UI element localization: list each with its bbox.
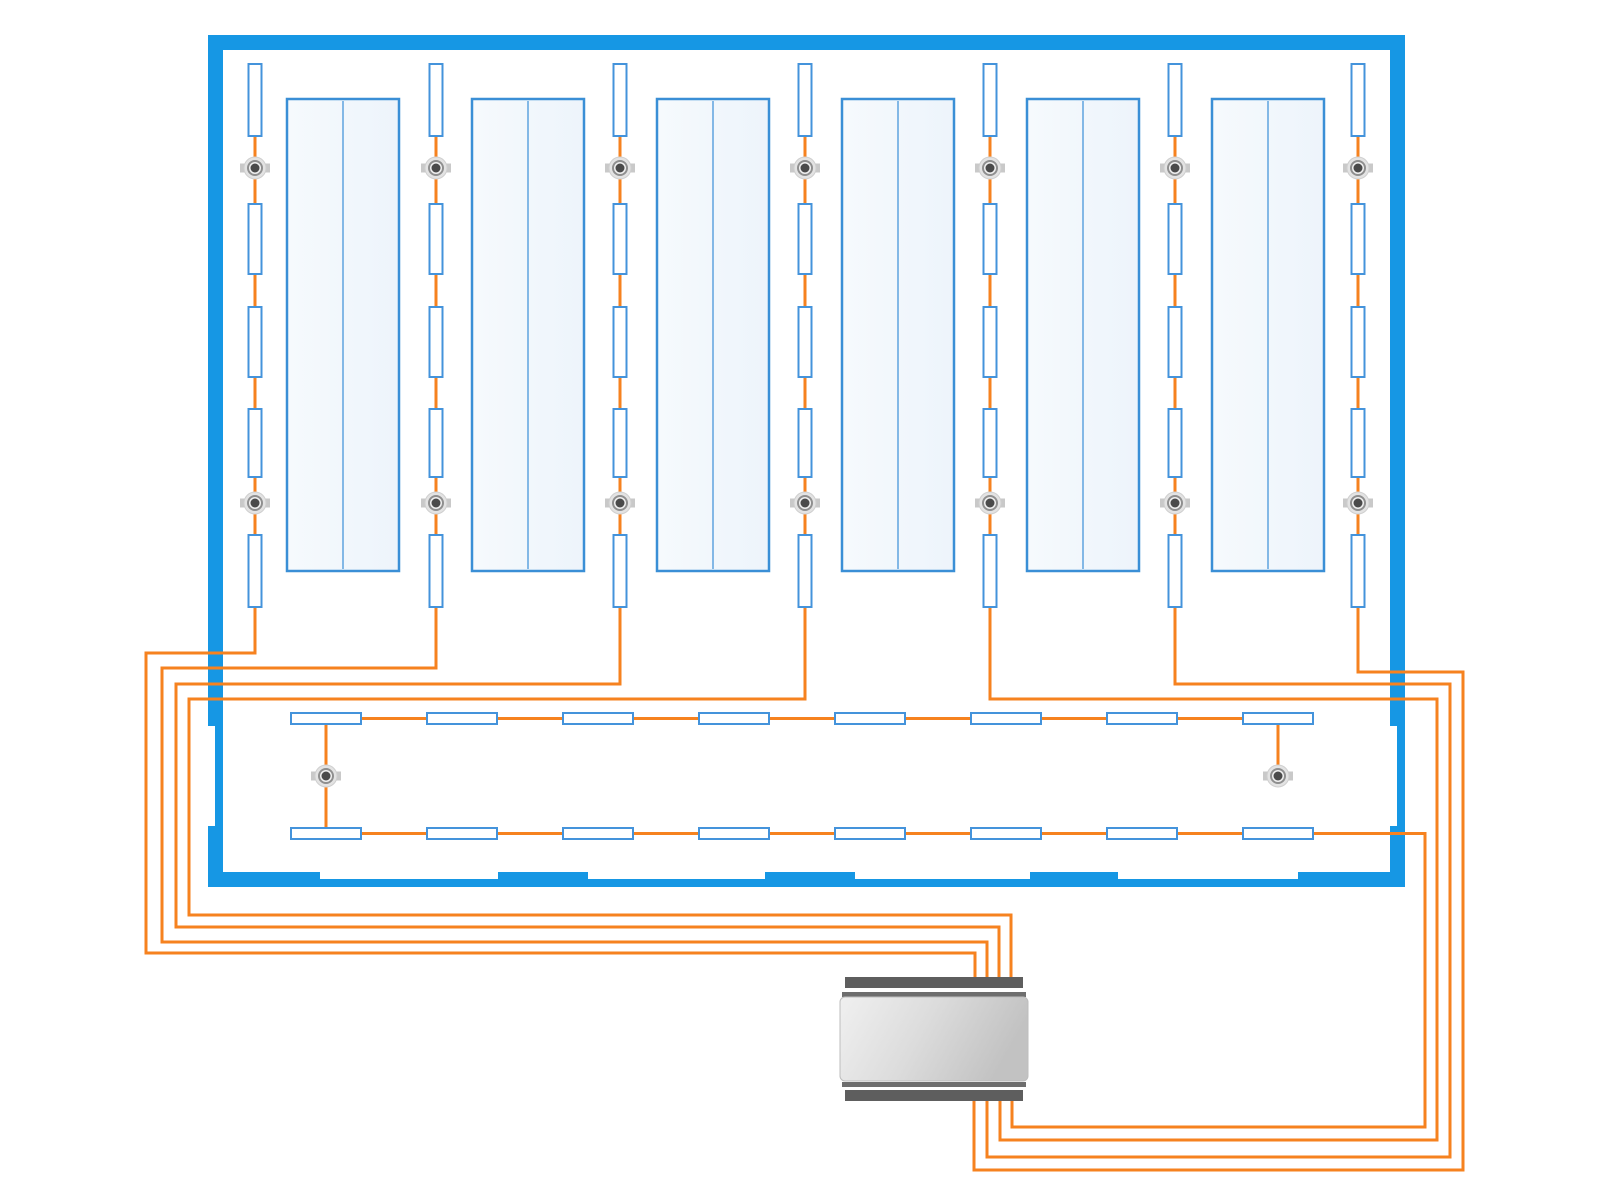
light-fixture xyxy=(249,64,262,136)
door-opening xyxy=(208,726,215,826)
light-fixture xyxy=(1169,64,1182,136)
storage-rack xyxy=(657,99,769,571)
light-fixture xyxy=(291,828,361,839)
light-fixture xyxy=(614,204,627,274)
controller-end-cap xyxy=(842,1082,1026,1087)
light-fixture xyxy=(1352,204,1365,274)
light-fixture xyxy=(1107,828,1177,839)
occupancy-sensor xyxy=(1160,492,1190,514)
occupancy-sensor xyxy=(790,157,820,179)
light-fixture xyxy=(249,307,262,377)
controller-body xyxy=(840,997,1028,1081)
sensor-lens xyxy=(1171,164,1180,173)
controller-device xyxy=(840,977,1028,1101)
wall-top xyxy=(208,35,1405,50)
light-fixture xyxy=(430,204,443,274)
light-fixture xyxy=(563,713,633,724)
light-fixture xyxy=(1169,409,1182,477)
storage-rack xyxy=(287,99,399,571)
controller-end-cap xyxy=(845,1090,1023,1101)
sensor-lens xyxy=(1171,499,1180,508)
sensor-lens xyxy=(801,164,810,173)
light-fixture xyxy=(984,64,997,136)
light-fixture xyxy=(1169,535,1182,607)
light-fixture xyxy=(427,713,497,724)
occupancy-sensor xyxy=(605,492,635,514)
sensor-lens xyxy=(1274,772,1283,781)
light-fixture xyxy=(699,713,769,724)
occupancy-sensor xyxy=(605,157,635,179)
light-fixture xyxy=(835,828,905,839)
occupancy-sensor xyxy=(240,157,270,179)
light-fixture xyxy=(835,713,905,724)
sensor-lens xyxy=(616,499,625,508)
diagram-stage xyxy=(0,0,1600,1200)
light-fixture xyxy=(249,409,262,477)
sensor-lens xyxy=(986,499,995,508)
light-fixture xyxy=(1352,535,1365,607)
light-fixture xyxy=(291,713,361,724)
light-fixture xyxy=(427,828,497,839)
light-fixture xyxy=(614,64,627,136)
storage-rack xyxy=(472,99,584,571)
light-fixture xyxy=(430,64,443,136)
light-fixture xyxy=(563,828,633,839)
sensor-lens xyxy=(986,164,995,173)
occupancy-sensor xyxy=(421,492,451,514)
occupancy-sensor xyxy=(790,492,820,514)
light-fixture xyxy=(1352,64,1365,136)
door-opening xyxy=(1390,726,1397,826)
sensor-lens xyxy=(251,164,260,173)
lighting-floorplan-diagram xyxy=(0,0,1600,1200)
light-fixture xyxy=(799,409,812,477)
occupancy-sensor xyxy=(1160,157,1190,179)
light-fixture xyxy=(249,204,262,274)
light-fixture xyxy=(984,535,997,607)
storage-rack xyxy=(1212,99,1324,571)
sensor-lens xyxy=(432,499,441,508)
wall-bottom-pier xyxy=(498,872,588,887)
light-fixture xyxy=(430,535,443,607)
light-fixture xyxy=(1107,713,1177,724)
wall-bottom-pier xyxy=(1298,872,1405,887)
wall-bottom-pier xyxy=(765,872,855,887)
light-fixture xyxy=(1352,307,1365,377)
light-fixture xyxy=(699,828,769,839)
occupancy-sensor xyxy=(240,492,270,514)
light-fixture xyxy=(614,535,627,607)
light-fixture xyxy=(614,409,627,477)
sensor-lens xyxy=(616,164,625,173)
light-fixture xyxy=(1243,713,1313,724)
occupancy-sensor xyxy=(421,157,451,179)
light-fixture xyxy=(799,204,812,274)
occupancy-sensor xyxy=(1343,157,1373,179)
light-fixture xyxy=(430,409,443,477)
light-fixture xyxy=(614,307,627,377)
light-fixture xyxy=(799,64,812,136)
light-fixture xyxy=(799,307,812,377)
occupancy-sensor xyxy=(1343,492,1373,514)
occupancy-sensor xyxy=(975,492,1005,514)
light-fixture xyxy=(799,535,812,607)
sensor-lens xyxy=(1354,164,1363,173)
occupancy-sensor xyxy=(1263,765,1293,787)
light-fixture xyxy=(1243,828,1313,839)
light-fixture xyxy=(1352,409,1365,477)
light-fixture xyxy=(249,535,262,607)
wall-bottom-pier xyxy=(208,872,320,887)
light-fixture xyxy=(971,828,1041,839)
light-fixture xyxy=(971,713,1041,724)
sensor-lens xyxy=(801,499,810,508)
sensor-lens xyxy=(1354,499,1363,508)
controller-end-cap xyxy=(842,992,1026,997)
occupancy-sensor xyxy=(975,157,1005,179)
light-fixture xyxy=(1169,204,1182,274)
sensor-lens xyxy=(251,499,260,508)
light-fixture xyxy=(984,204,997,274)
occupancy-sensor xyxy=(311,765,341,787)
light-fixture xyxy=(984,307,997,377)
wall-bottom-pier xyxy=(1030,872,1118,887)
light-fixture xyxy=(984,409,997,477)
controller-end-cap xyxy=(845,977,1023,988)
storage-rack xyxy=(1027,99,1139,571)
light-fixture xyxy=(430,307,443,377)
sensor-lens xyxy=(322,772,331,781)
storage-rack xyxy=(842,99,954,571)
light-fixture xyxy=(1169,307,1182,377)
sensor-lens xyxy=(432,164,441,173)
